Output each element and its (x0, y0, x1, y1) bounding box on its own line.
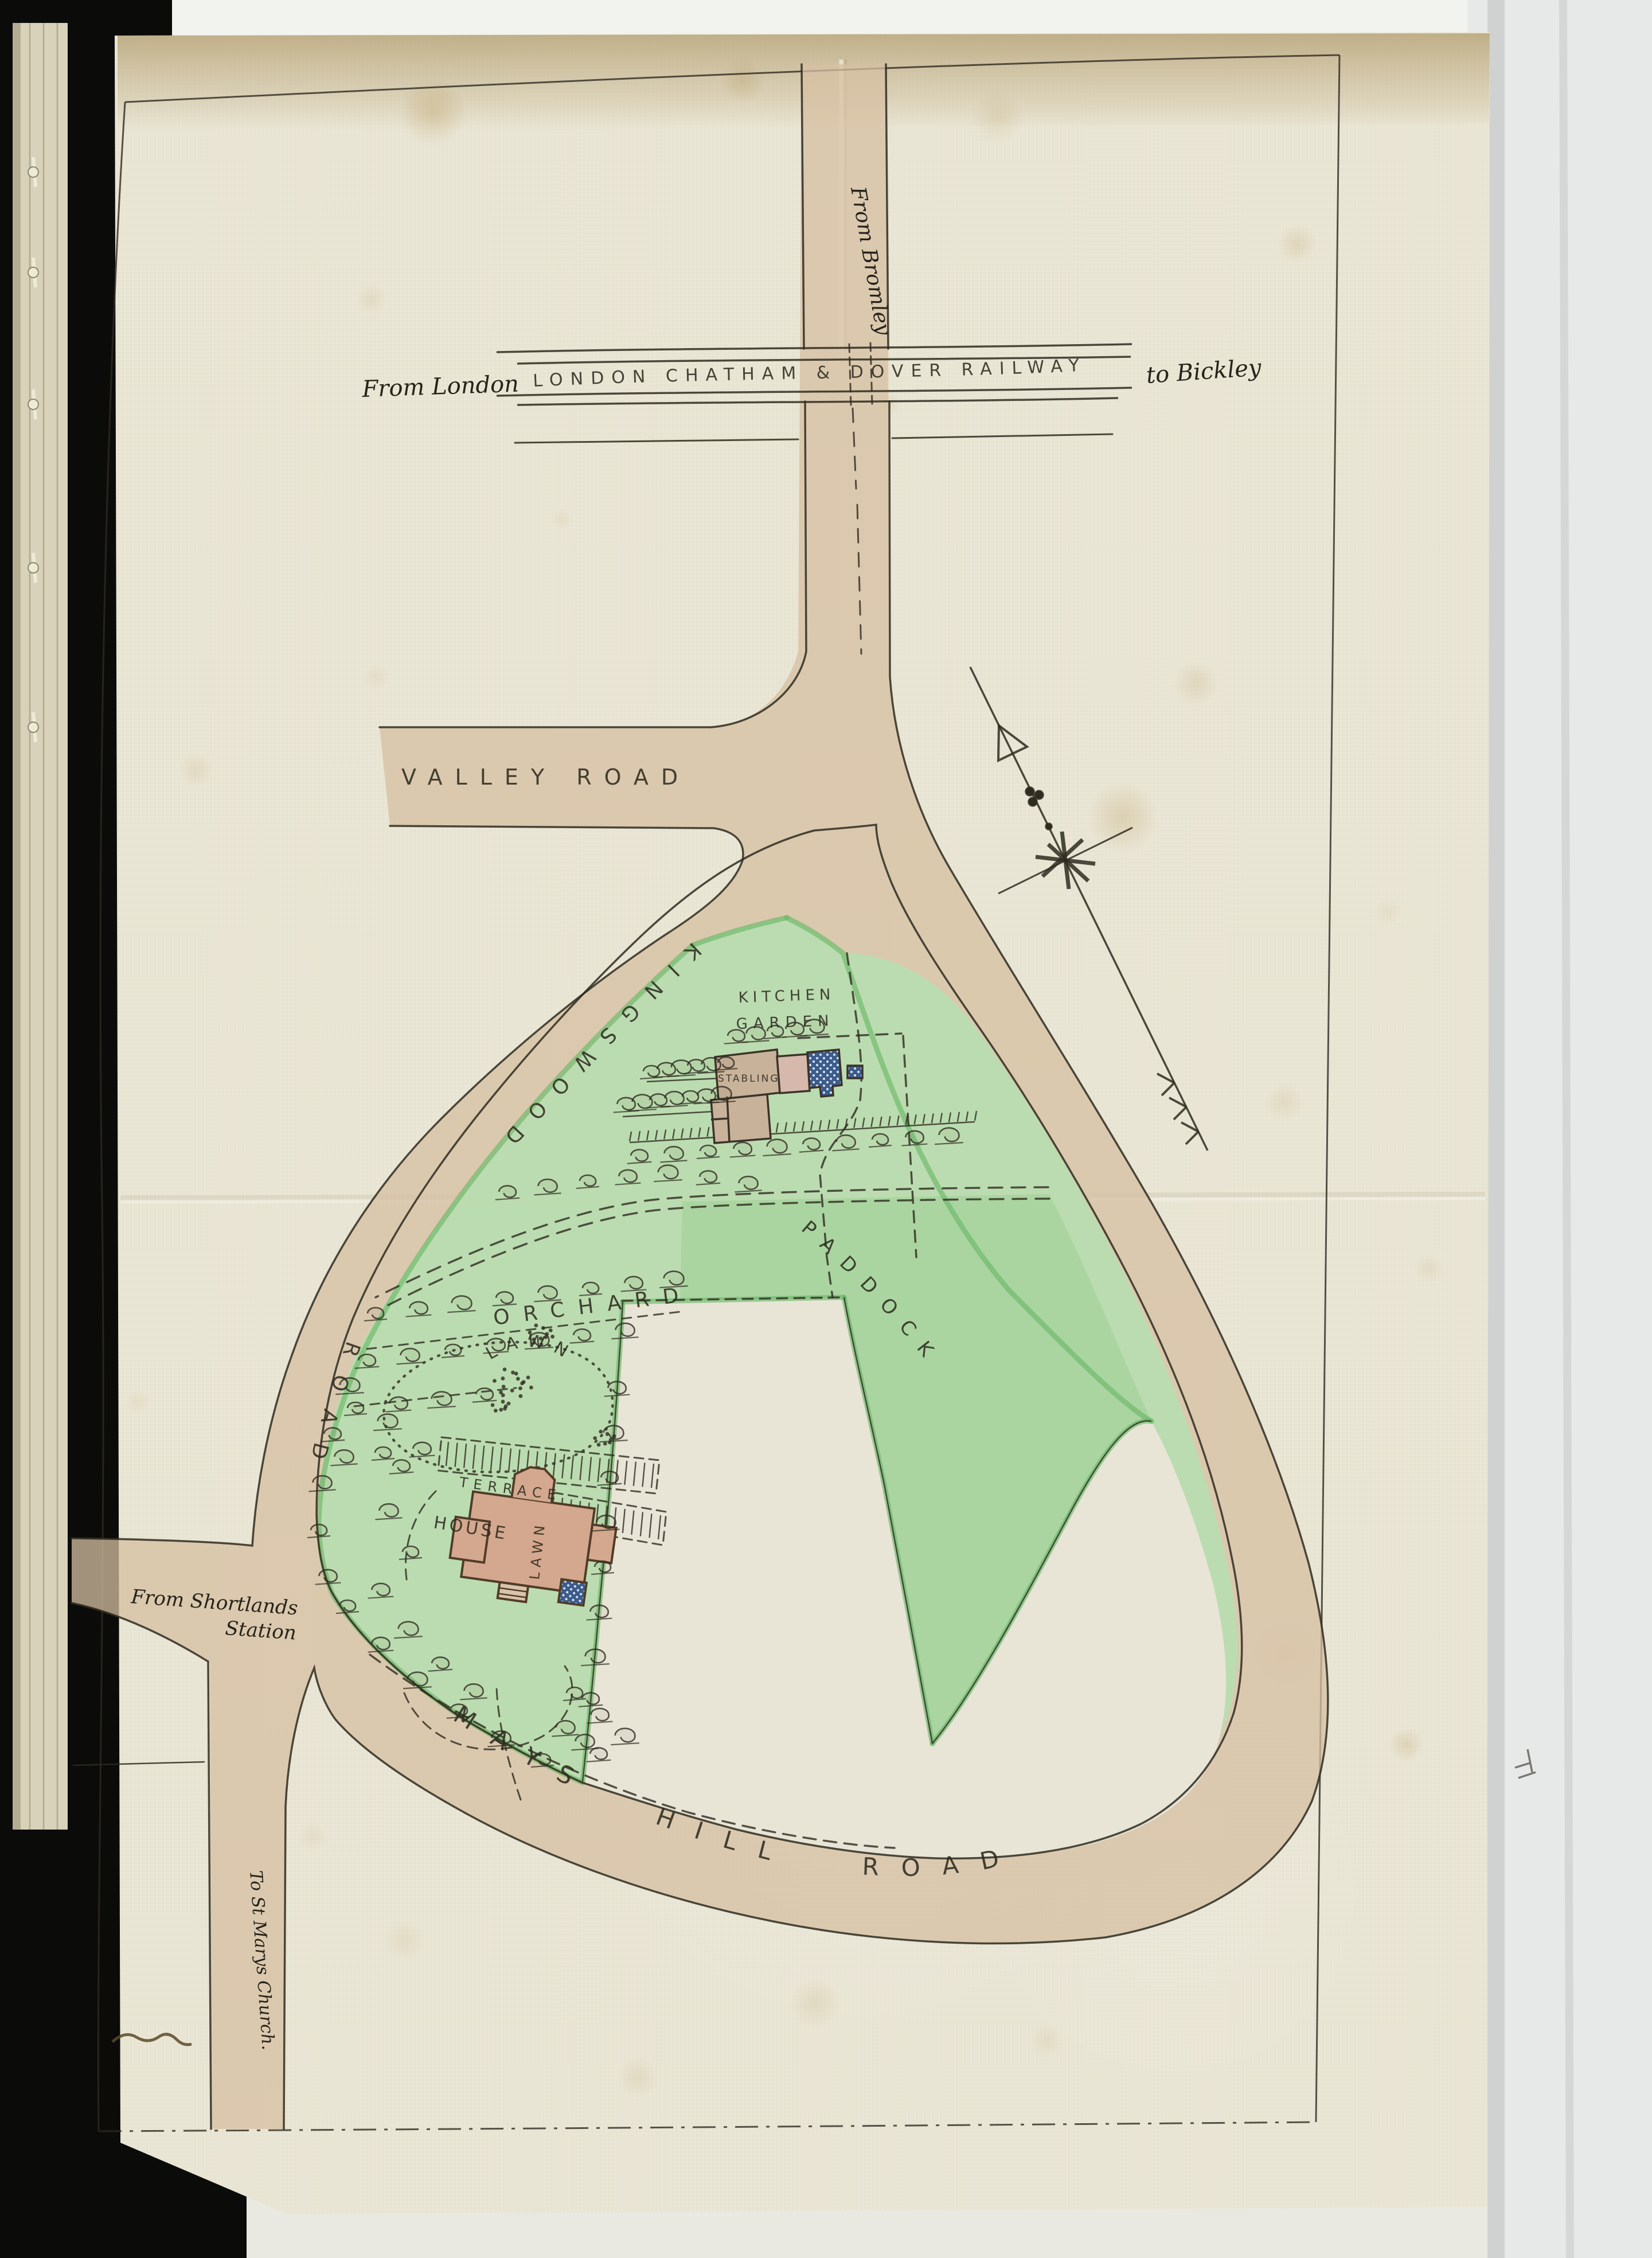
white-backing-sheet-right (1468, 0, 1652, 2258)
label-stabling: STABLING (718, 1073, 780, 1085)
label-garden: GARDEN (736, 1012, 835, 1033)
label-from-london: From London (361, 371, 520, 403)
scanned-estate-plan: From Bromley From London LONDON CHATHAM … (0, 0, 1652, 2258)
label-valley-road: VALLEY ROAD (401, 765, 690, 790)
book-page-edges (13, 23, 68, 1830)
label-kitchen: KITCHEN (738, 986, 835, 1007)
